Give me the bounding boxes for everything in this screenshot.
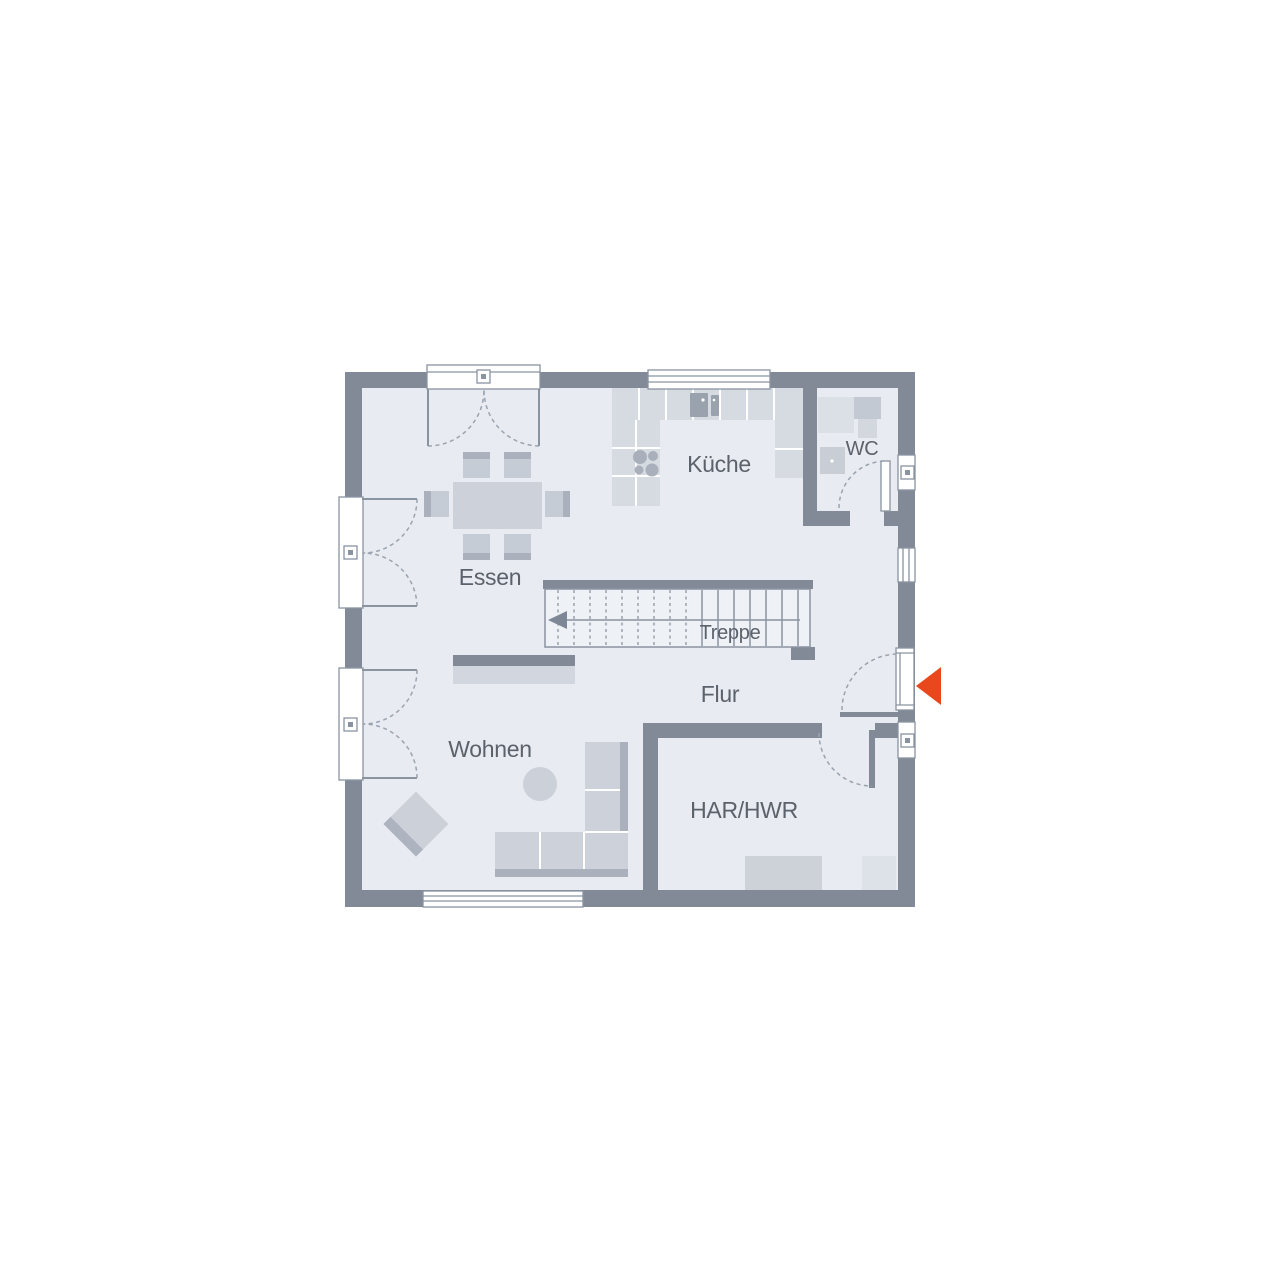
washbasin-pedestal xyxy=(858,419,877,438)
dining-chair xyxy=(424,491,449,517)
floor-plan-drawing: Essen Küche WC Treppe Flur Wohnen HAR/HW… xyxy=(0,0,1280,1280)
room-label-treppe: Treppe xyxy=(700,622,761,644)
wall-stair-top xyxy=(543,580,813,589)
kitchen-window xyxy=(648,370,770,389)
wall-kitchen-wc xyxy=(803,388,817,526)
entry-side-window xyxy=(898,722,915,758)
dining-chair xyxy=(504,452,531,478)
sink-icon xyxy=(690,393,719,417)
wall-stair-step xyxy=(791,647,815,660)
dining-chair xyxy=(545,491,570,517)
wall-partition-wohnen xyxy=(453,655,575,666)
coffee-table xyxy=(523,767,557,801)
toilet-icon xyxy=(820,447,845,474)
wall-right xyxy=(898,372,915,907)
dining-chair xyxy=(463,452,490,478)
stair-body xyxy=(545,589,810,647)
stairs xyxy=(545,589,810,647)
room-label-kueche: Küche xyxy=(687,451,751,477)
wall-har-top xyxy=(643,723,822,738)
wall-har-stub xyxy=(875,723,898,738)
sideboard xyxy=(453,666,575,684)
room-label-wohnen: Wohnen xyxy=(448,736,531,762)
washer-icon xyxy=(745,856,822,890)
living-window xyxy=(423,891,583,907)
dining-table xyxy=(453,482,542,529)
wall-wc-bottom xyxy=(803,511,850,526)
room-label-har-hwr: HAR/HWR xyxy=(690,797,798,823)
wall-left xyxy=(345,372,362,907)
har-appliances xyxy=(745,856,896,890)
wall-partition-entry xyxy=(840,712,898,717)
wc-window xyxy=(898,455,915,490)
room-label-wc: WC xyxy=(846,438,879,460)
dining-chair xyxy=(504,534,531,560)
wall-har-left xyxy=(643,723,658,890)
entrance-arrow-icon xyxy=(916,667,941,705)
dryer-icon xyxy=(862,856,896,890)
wc-counter xyxy=(818,397,854,433)
hall-window xyxy=(898,548,915,582)
washbasin-icon xyxy=(854,397,881,419)
wall-wc-stub xyxy=(884,511,898,526)
room-label-flur: Flur xyxy=(701,681,740,707)
dining-chair xyxy=(463,534,490,560)
floor-plan-page: Essen Küche WC Treppe Flur Wohnen HAR/HW… xyxy=(0,0,1280,1280)
room-label-essen: Essen xyxy=(459,564,521,590)
